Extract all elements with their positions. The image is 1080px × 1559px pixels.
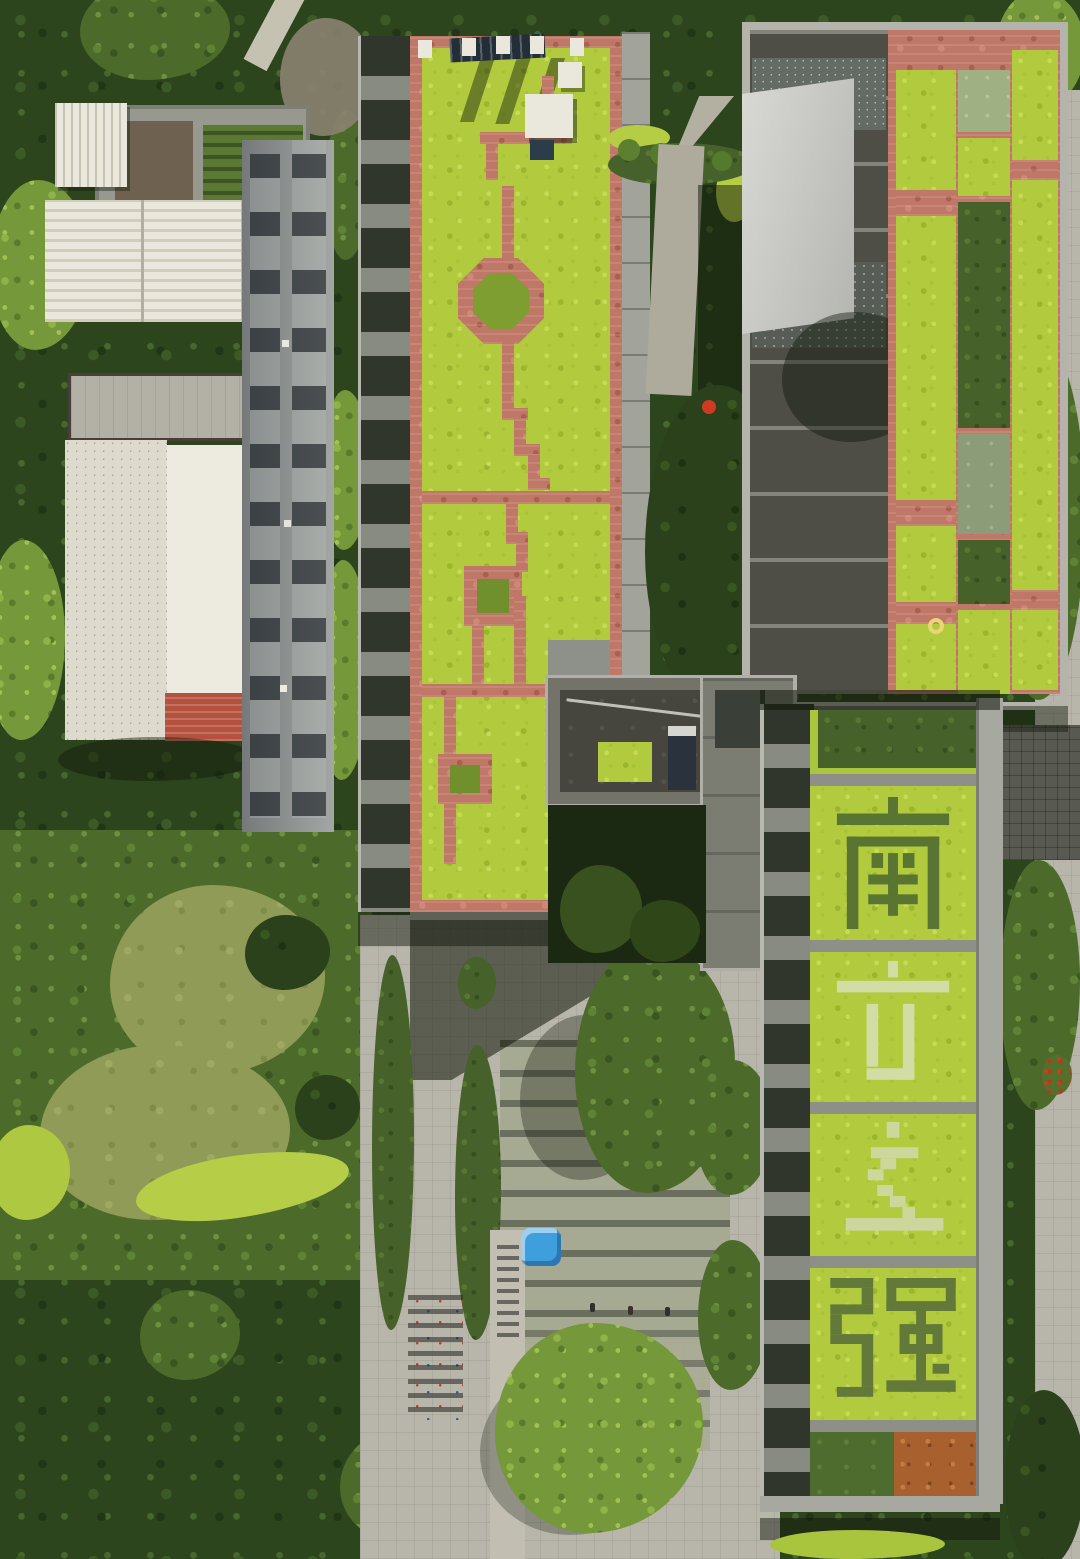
motto-char: 方: [810, 952, 811, 953]
brick-path: [502, 342, 514, 382]
left-building: [40, 95, 365, 855]
topiary-ball: [618, 139, 640, 161]
motto-panel-4: 强: [810, 1268, 976, 1420]
brick-gap: [1012, 160, 1058, 180]
medallion-center: [477, 579, 509, 613]
window-column: [292, 140, 326, 818]
brick-gap: [896, 190, 956, 216]
scene-caption: Top-down view of campus buildings with s…: [0, 0, 1, 1]
panel-divider: [810, 1256, 976, 1268]
motto-char: 南: [810, 786, 811, 787]
ac-unit: [280, 685, 287, 692]
roof-pillar: [462, 38, 476, 56]
brick-path: [514, 596, 526, 684]
white-sloped-canopy: [742, 78, 854, 334]
window-column: [250, 154, 280, 818]
shrub-cluster: [295, 1075, 360, 1140]
motto-char: 之: [810, 1114, 811, 1115]
brick-gap: [896, 602, 956, 624]
roof-walk: [810, 774, 976, 786]
eave-shadow: [58, 737, 258, 781]
brick-path: [486, 132, 498, 180]
plant-bed: [958, 138, 1010, 196]
big-bright-tree: [495, 1323, 703, 1533]
pedestrian: [628, 1306, 633, 1315]
brick-path: [444, 697, 456, 754]
roof-pillar: [418, 40, 432, 58]
hedge-row: [372, 955, 414, 1330]
roof-pillar: [496, 36, 510, 54]
brick-path: [528, 478, 550, 490]
tree-canopy-patch: [140, 1290, 240, 1380]
motto-char: 强: [810, 1268, 811, 1269]
plant-bed: [958, 610, 1010, 694]
motto-panel-2: 方: [810, 952, 976, 1102]
courtyard-tree: [630, 900, 700, 962]
orange-plant-plot: [894, 1432, 976, 1496]
south-parapet: [760, 1496, 1000, 1512]
courtyard-tree: [560, 865, 642, 953]
square-medallion: [438, 754, 492, 804]
west-balcony-rail: [358, 36, 413, 912]
brick-path: [502, 186, 514, 262]
yellow-ring-object: [928, 618, 944, 634]
red-tile-patch: [165, 693, 247, 741]
topiary-char-zhi: [830, 1122, 956, 1248]
pedestrian: [665, 1307, 670, 1316]
southeast-motto-roof-building: 南方之强 南 方: [760, 690, 1000, 1525]
east-parapet: [976, 698, 1003, 1504]
small-green-patch: [598, 742, 652, 782]
northeast-green-roof-building: [742, 22, 1068, 710]
medallion-center: [450, 765, 480, 793]
brick-path: [444, 804, 456, 864]
panel-divider: [810, 1420, 976, 1432]
medallion-center: [473, 273, 529, 329]
ac-unit: [668, 736, 696, 790]
dark-roof-patch: [715, 690, 765, 748]
panel-divider: [810, 940, 976, 952]
rooftop-equipment-box: [558, 62, 582, 88]
tall-shrub-bed: [958, 202, 1010, 428]
west-balcony-rail: [760, 704, 814, 1504]
topiary-ball: [712, 151, 732, 171]
shaded-courtyard: [548, 805, 706, 963]
topiary-char-qiang: [827, 1278, 959, 1410]
pale-plant-bed: [958, 434, 1010, 534]
panel-divider: [810, 1102, 976, 1114]
bike-rack: [497, 1245, 519, 1337]
roof-pillar: [530, 36, 544, 54]
white-roof-left: [65, 440, 167, 740]
dark-green-plot: [810, 1432, 894, 1496]
building-facade: [242, 140, 334, 832]
red-flower-cluster: [702, 400, 716, 414]
brick-gap: [896, 500, 956, 526]
gap-shadow: [760, 690, 1000, 710]
motto-panel-3: 之: [810, 1114, 976, 1256]
pedestrian: [590, 1303, 595, 1312]
motto-panel-1: 南: [810, 786, 976, 940]
topiary-char-fang: [827, 961, 959, 1093]
roof-planting-field: [888, 30, 1060, 694]
tree-canopy-patch: [1005, 1390, 1080, 1559]
hedge-band: [810, 710, 976, 774]
brick-path: [472, 626, 484, 684]
aerial-photo-canvas: Top-down view of campus buildings with s…: [0, 0, 1080, 1559]
roof-pillar: [570, 38, 584, 56]
brick-gap: [1012, 590, 1058, 610]
rooftop-shed: [55, 103, 127, 187]
tree-canopy-patch: [80, 0, 230, 80]
white-corrugated-roof: [45, 200, 243, 322]
tall-shrub-bed: [958, 540, 1010, 604]
rooftop-equipment-box: [530, 140, 554, 160]
ac-unit: [282, 340, 289, 347]
bright-hedge-row: [770, 1530, 945, 1559]
pale-plant-bed: [958, 70, 1010, 132]
motorbike-row: [408, 1295, 463, 1420]
topiary-char-nan: [827, 797, 959, 929]
ac-unit: [284, 520, 291, 527]
roof-seam: [141, 200, 144, 322]
sedum-strip: [896, 70, 956, 690]
brick-path-horizontal: [422, 491, 610, 504]
ground-garden: [0, 830, 372, 1280]
paved-courtyard: [360, 915, 780, 1559]
blue-canopy: [521, 1228, 561, 1266]
stair-platform: [548, 640, 610, 680]
rooftop-equipment-box: [525, 94, 573, 138]
